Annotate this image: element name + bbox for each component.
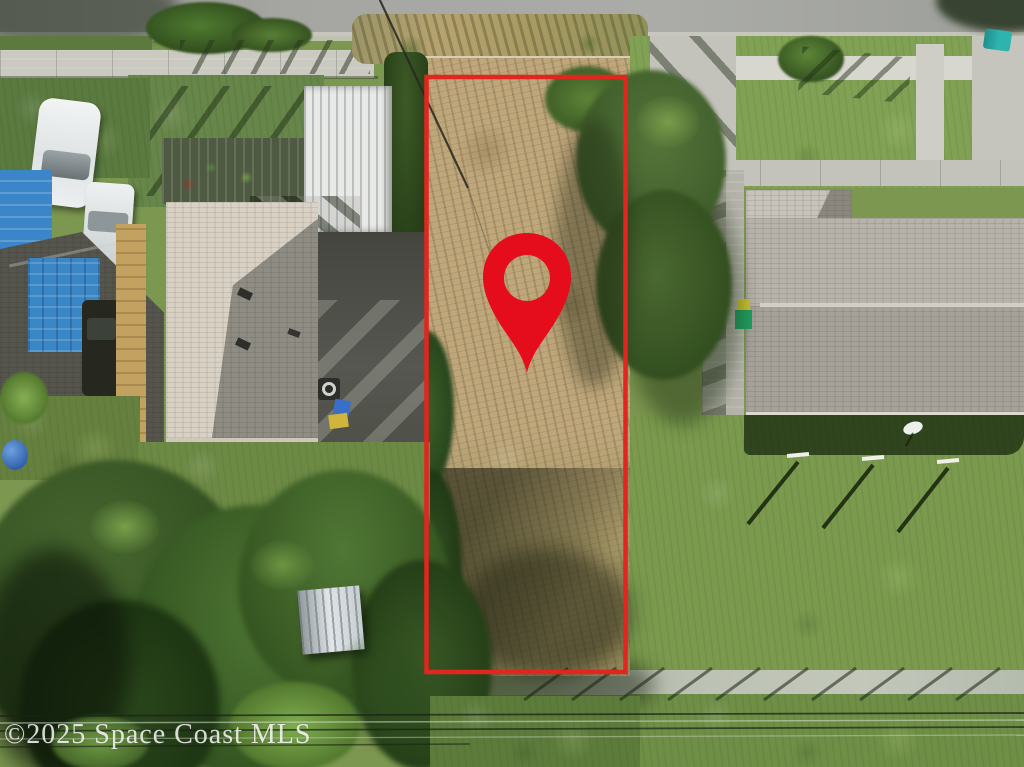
aerial-photo: ©2025 Space Coast MLS — [0, 0, 1024, 767]
location-pin-icon — [480, 231, 574, 375]
watermark: ©2025 Space Coast MLS — [4, 719, 311, 751]
lot-boundary-overlay — [0, 0, 1024, 767]
